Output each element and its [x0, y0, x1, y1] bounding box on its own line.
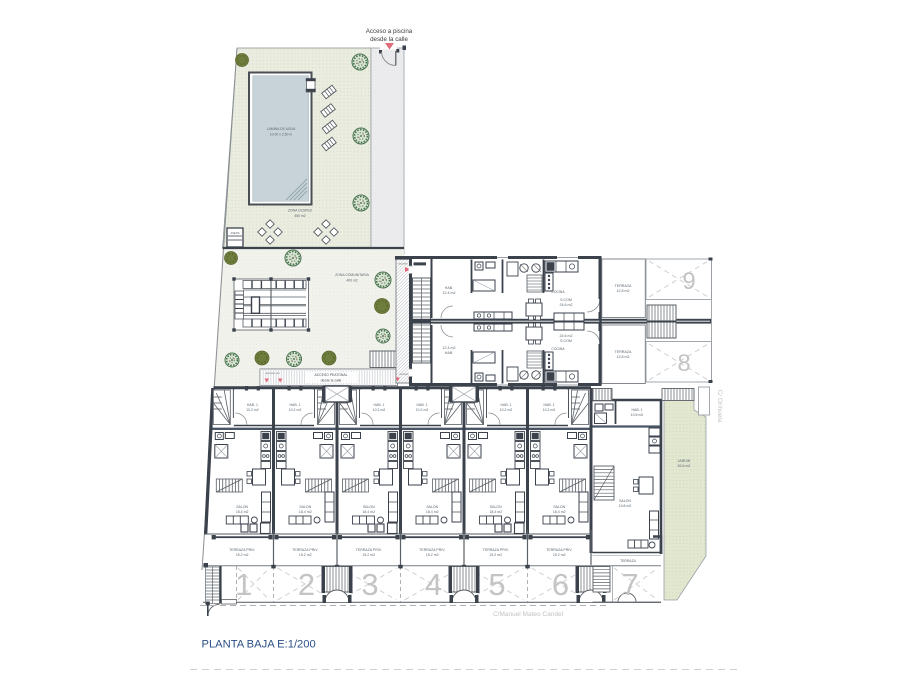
svg-text:COCINA: COCINA — [551, 290, 565, 294]
svg-text:S.COM: S.COM — [560, 298, 572, 302]
svg-text:C/ Orihuela: C/ Orihuela — [716, 390, 723, 423]
svg-text:TERRAZA PRIV.: TERRAZA PRIV. — [292, 548, 318, 552]
svg-text:TERRAZA PRIV.: TERRAZA PRIV. — [419, 548, 445, 552]
svg-text:ZONA COMUNITARIA: ZONA COMUNITARIA — [335, 273, 369, 277]
svg-text:ZONA CESPED: ZONA CESPED — [288, 209, 313, 213]
svg-text:HAB. 1: HAB. 1 — [289, 403, 300, 407]
svg-text:15.2 m2: 15.2 m2 — [362, 553, 375, 557]
svg-text:HAB. 1: HAB. 1 — [500, 403, 511, 407]
svg-text:18.4 m2: 18.4 m2 — [299, 510, 312, 514]
svg-text:LAMINA DE AGUA: LAMINA DE AGUA — [267, 127, 296, 131]
svg-text:10.6 m2: 10.6 m2 — [631, 413, 644, 417]
svg-text:2: 2 — [298, 567, 315, 602]
svg-text:18.4 m2: 18.4 m2 — [236, 510, 249, 514]
svg-text:Acceso a piscina: Acceso a piscina — [366, 28, 413, 35]
svg-text:HAB. 1: HAB. 1 — [247, 403, 258, 407]
svg-text:6: 6 — [552, 567, 569, 602]
svg-text:15.2 m2: 15.2 m2 — [553, 553, 566, 557]
svg-text:acceso: acceso — [399, 372, 409, 376]
svg-text:TERRAZA: TERRAZA — [615, 284, 632, 288]
svg-text:4: 4 — [425, 567, 442, 602]
svg-text:7: 7 — [621, 567, 638, 602]
svg-text:9: 9 — [682, 268, 695, 295]
svg-text:TERRAZA: TERRAZA — [615, 350, 632, 354]
svg-text:5: 5 — [488, 567, 505, 602]
svg-text:C/Manuel Mateo Candel: C/Manuel Mateo Candel — [493, 611, 564, 618]
svg-text:15.2 m2: 15.2 m2 — [299, 553, 312, 557]
svg-text:TERRAZA PRIV.: TERRAZA PRIV. — [546, 548, 572, 552]
svg-text:COCINA: COCINA — [551, 347, 565, 351]
svg-text:acceso: acceso — [398, 262, 408, 266]
svg-text:15.2 m2: 15.2 m2 — [426, 553, 439, 557]
svg-text:HAB.: HAB. — [445, 351, 453, 355]
svg-text:12.4 m2: 12.4 m2 — [443, 346, 456, 350]
svg-text:TERRAZA PRIV.: TERRAZA PRIV. — [356, 548, 382, 552]
svg-text:HAB. 1: HAB. 1 — [416, 403, 427, 407]
svg-text:18.4 m2: 18.4 m2 — [426, 510, 439, 514]
svg-text:52.6 m2: 52.6 m2 — [678, 464, 691, 468]
svg-text:SALON: SALON — [490, 505, 502, 509]
svg-text:10.2 m2: 10.2 m2 — [289, 408, 302, 412]
svg-text:19.8 m2: 19.8 m2 — [619, 504, 632, 508]
svg-text:PLANTA BAJA E:1/200: PLANTA BAJA E:1/200 — [202, 639, 316, 651]
svg-text:24.6 m2: 24.6 m2 — [560, 334, 573, 338]
svg-text:12.4 m2: 12.4 m2 — [443, 291, 456, 295]
svg-text:S.COM: S.COM — [560, 339, 572, 343]
svg-text:HAB. 1: HAB. 1 — [631, 408, 642, 412]
svg-text:10.2 m2: 10.2 m2 — [246, 408, 259, 412]
svg-text:HAB. 1: HAB. 1 — [543, 403, 554, 407]
svg-text:TERRAZA: TERRAZA — [620, 559, 637, 563]
svg-text:400 m2: 400 m2 — [346, 279, 357, 283]
svg-text:HAB. 1: HAB. 1 — [373, 403, 384, 407]
svg-text:TERRAZA PRIV.: TERRAZA PRIV. — [229, 548, 255, 552]
svg-text:10.00 x 2.50 m: 10.00 x 2.50 m — [270, 133, 293, 137]
svg-text:18.4 m2: 18.4 m2 — [362, 510, 375, 514]
svg-text:desde la calle: desde la calle — [370, 36, 408, 43]
svg-text:HAB.: HAB. — [445, 286, 453, 290]
svg-text:1: 1 — [235, 567, 252, 602]
svg-text:SALON: SALON — [299, 505, 311, 509]
svg-text:15.2 m2: 15.2 m2 — [236, 553, 249, 557]
svg-text:desde la calle: desde la calle — [321, 379, 342, 383]
svg-text:TERRAZA PRIV.: TERRAZA PRIV. — [483, 548, 509, 552]
svg-text:24.6 m2: 24.6 m2 — [560, 303, 573, 307]
svg-text:ACCESO PEATONAL: ACCESO PEATONAL — [314, 373, 347, 377]
svg-text:18.4 m2: 18.4 m2 — [489, 510, 502, 514]
svg-text:SALON: SALON — [363, 505, 375, 509]
svg-text:10.2 m2: 10.2 m2 — [416, 408, 429, 412]
svg-text:8: 8 — [677, 350, 690, 377]
svg-text:12.8 m2: 12.8 m2 — [617, 289, 630, 293]
svg-text:SALON: SALON — [236, 505, 248, 509]
svg-text:10.2 m2: 10.2 m2 — [543, 408, 556, 412]
svg-text:450 m2: 450 m2 — [294, 214, 305, 218]
svg-text:acceso viv.: acceso viv. — [266, 371, 281, 375]
svg-text:12.8 m2: 12.8 m2 — [617, 355, 630, 359]
svg-text:18.4 m2: 18.4 m2 — [553, 510, 566, 514]
svg-text:JARDIN: JARDIN — [678, 459, 691, 463]
svg-text:10.2 m2: 10.2 m2 — [373, 408, 386, 412]
svg-text:15.2 m2: 15.2 m2 — [489, 553, 502, 557]
svg-text:SALON: SALON — [426, 505, 438, 509]
svg-text:ASEOS: ASEOS — [231, 231, 240, 235]
svg-text:10.2 m2: 10.2 m2 — [500, 408, 513, 412]
svg-text:3: 3 — [361, 567, 378, 602]
svg-text:SALON: SALON — [553, 505, 565, 509]
svg-text:SALON: SALON — [619, 499, 631, 503]
